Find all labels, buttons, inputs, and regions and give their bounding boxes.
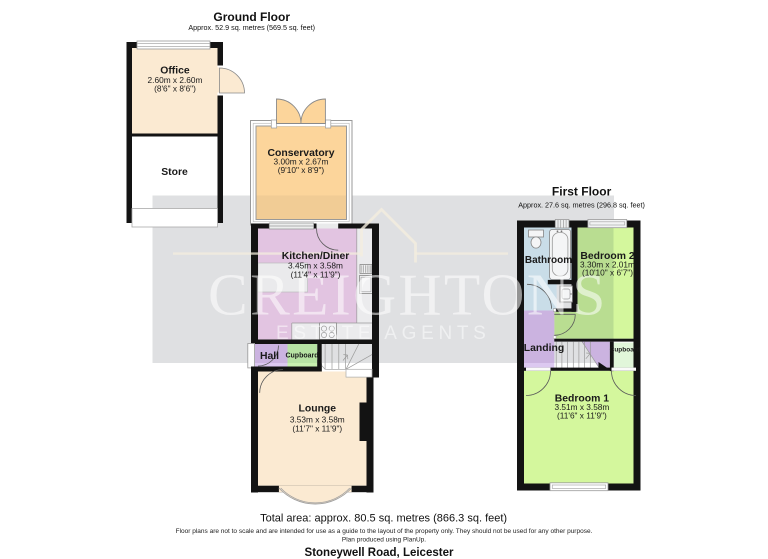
svg-text:Plan produced using PlanUp.: Plan produced using PlanUp. — [342, 537, 426, 544]
svg-text:ESTATE AGENTS: ESTATE AGENTS — [276, 323, 491, 344]
svg-text:(9'10" x 8'9"): (9'10" x 8'9") — [278, 165, 325, 175]
svg-text:Store: Store — [161, 167, 188, 178]
svg-text:(11'7" x 11'9"): (11'7" x 11'9") — [292, 423, 342, 433]
svg-text:Cupboard: Cupboard — [610, 347, 641, 354]
svg-text:Bathroom: Bathroom — [525, 255, 572, 266]
svg-text:First Floor: First Floor — [552, 185, 612, 199]
svg-text:Lounge: Lounge — [299, 403, 337, 414]
svg-text:Approx. 52.9 sq. metres (569.5: Approx. 52.9 sq. metres (569.5 sq. feet) — [188, 23, 315, 32]
svg-text:Approx. 27.6 sq. metres (296.8: Approx. 27.6 sq. metres (296.8 sq. feet) — [518, 201, 645, 210]
svg-text:(8'6" x 8'6"): (8'6" x 8'6") — [154, 84, 196, 94]
svg-text:Stoneywell Road, Leicester: Stoneywell Road, Leicester — [305, 547, 454, 559]
svg-text:Floor plans are not to scale a: Floor plans are not to scale and are int… — [176, 528, 593, 535]
svg-text:Hall: Hall — [260, 351, 279, 362]
svg-text:(11'4" x 11'9"): (11'4" x 11'9") — [291, 270, 341, 280]
svg-text:Ground Floor: Ground Floor — [213, 10, 290, 24]
svg-text:(10'10" x 6'7"): (10'10" x 6'7") — [582, 268, 633, 278]
svg-text:CREIGHTONS: CREIGHTONS — [208, 262, 608, 328]
svg-text:Cupboard: Cupboard — [285, 353, 318, 360]
svg-text:(11'6" x 11'9"): (11'6" x 11'9") — [557, 411, 607, 421]
svg-text:Landing: Landing — [524, 343, 564, 354]
svg-text:Total area: approx. 80.5 sq. m: Total area: approx. 80.5 sq. metres (866… — [260, 513, 507, 525]
